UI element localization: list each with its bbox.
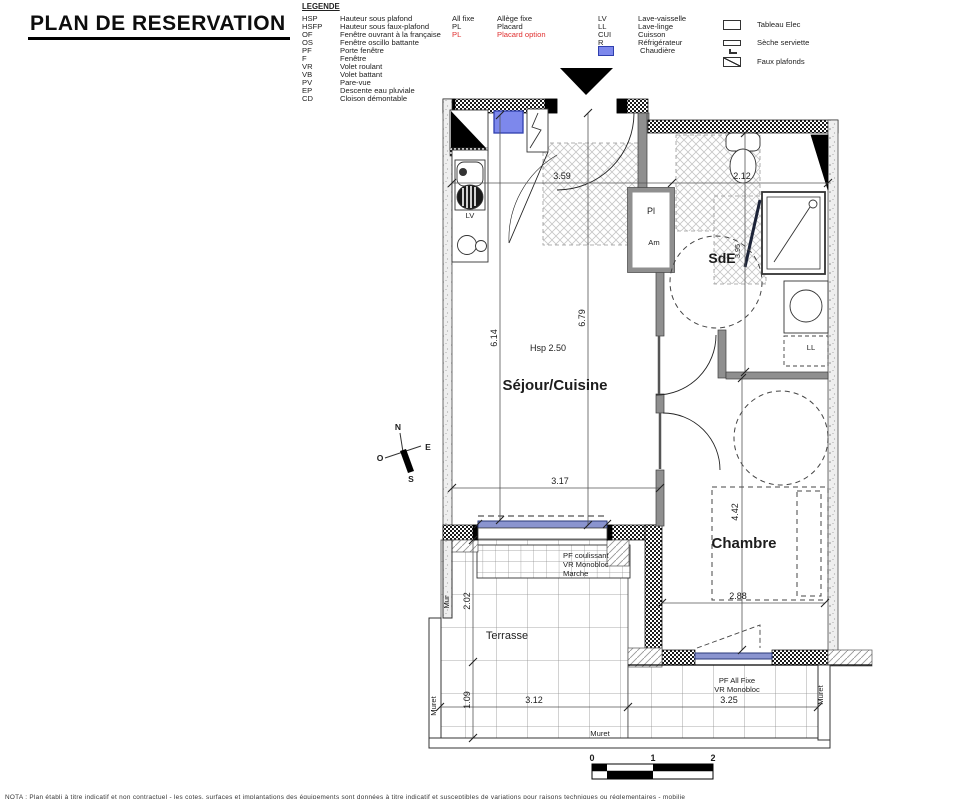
window-note: PF coulissant: [563, 551, 609, 560]
scale-0: 0: [589, 753, 594, 763]
dim-sejour-c: 6.79: [577, 309, 587, 327]
scale-bar: 0 1 2: [589, 753, 715, 779]
turning-circle: [734, 391, 828, 485]
fixed-window: [695, 625, 772, 659]
compass-o: O: [377, 453, 384, 463]
compass-s: S: [408, 474, 414, 484]
closet: [628, 188, 675, 273]
room-label-sejour: Séjour/Cuisine: [502, 377, 607, 394]
hob-burner: [476, 241, 487, 252]
boiler: [494, 111, 523, 133]
drainer: [457, 185, 483, 209]
dishwasher-label: LV: [466, 211, 476, 220]
hob-burner: [458, 236, 477, 255]
dim-chambre-h: 4.42: [730, 503, 740, 521]
scale-2: 2: [710, 753, 715, 763]
bedroom-door-arc: [663, 413, 720, 470]
floor-plan-page: PLAN DE RESERVATION LEGENDE HSPHauteur s…: [0, 0, 956, 800]
dim-chambre-w: 2.88: [729, 591, 747, 601]
muret-label: Muret: [429, 695, 438, 715]
window-note: VR Monobloc: [714, 685, 760, 694]
window-note: Marche: [563, 569, 588, 578]
washbasin: [790, 290, 822, 322]
closet-label: Pl: [647, 206, 655, 216]
sde-door-arc: [656, 335, 716, 395]
muret-label: Muret: [590, 729, 610, 738]
compass-n: N: [395, 422, 401, 432]
faucet: [459, 168, 467, 176]
compass-rose: N E O S: [377, 422, 431, 484]
window-note: VR Monobloc: [563, 560, 609, 569]
dim-muret-h: 1.09: [462, 691, 472, 709]
room-label-chambre: Chambre: [711, 535, 776, 552]
dim-terrasse-h: 2.02: [462, 592, 472, 610]
compass-needle: [400, 449, 414, 473]
scale-1: 1: [650, 753, 655, 763]
wall-label: Mur: [442, 595, 451, 609]
electric-panel: [527, 109, 548, 152]
ceiling-height-label: Hsp 2.50: [530, 343, 566, 353]
compass-e: E: [425, 442, 431, 452]
room-label-sde: SdE: [708, 250, 735, 266]
footnote-disclaimer: NOTA : Plan établi à titre indicatif et …: [5, 791, 685, 799]
shaft-triangle: [811, 135, 828, 190]
dim-sejour-w: 3.17: [551, 476, 569, 486]
window-note: PF All Fixe: [719, 676, 755, 685]
closet-option-label: Am: [648, 238, 659, 247]
dim-sejour-l: 6.14: [489, 329, 499, 347]
dim-wc: 2.12: [733, 171, 751, 181]
muret-label: Muret: [816, 684, 825, 704]
washer-label: LL: [807, 343, 815, 352]
dim-terrasse-w2: 3.25: [720, 695, 738, 705]
dim-terrasse-w: 3.12: [525, 695, 543, 705]
floor-plan-drawing: 3.59 2.12 6.14 6.79 3.95 3.17 2.88 4.42 …: [0, 0, 956, 800]
entrance-arrow: [560, 68, 613, 95]
room-label-terrasse: Terrasse: [486, 630, 528, 642]
dim-entree: 3.59: [553, 171, 571, 181]
bed-side: [797, 491, 821, 596]
